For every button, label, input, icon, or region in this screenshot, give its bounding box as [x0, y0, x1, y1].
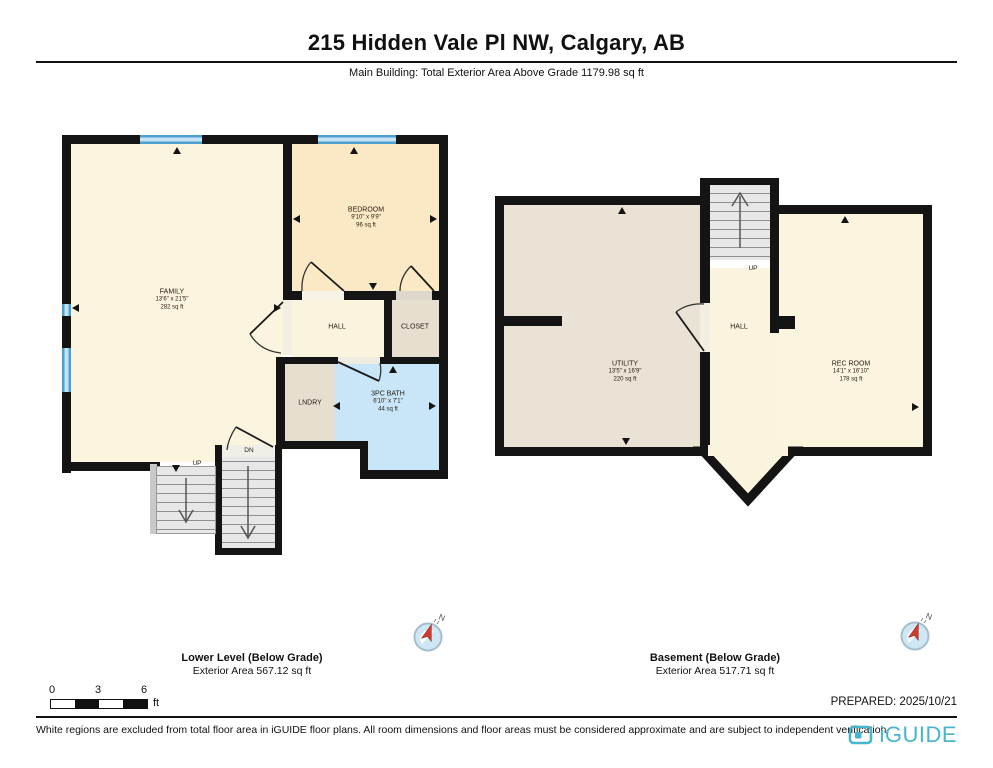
room-rec — [779, 214, 923, 447]
room-label-rec: REC ROOM 14'1" x 16'10" 178 sq ft — [832, 360, 871, 385]
iguide-logo-text: iGUIDE — [879, 722, 957, 748]
scale-bar-segments — [50, 699, 148, 709]
wall-segment — [770, 178, 779, 333]
scale-tick-0: 0 — [46, 684, 58, 696]
wall-segment — [700, 178, 777, 185]
wall-segment — [495, 447, 710, 456]
page-title: 215 Hidden Vale Pl NW, Calgary, AB — [0, 30, 993, 56]
stairs-up-basement — [710, 185, 770, 260]
compass-rose-basement: N — [894, 607, 940, 657]
stair-side-wall — [150, 464, 157, 534]
wall-segment — [360, 470, 448, 479]
wall-segment — [700, 178, 710, 268]
north-label: N — [924, 611, 933, 623]
scale-unit: ft — [153, 697, 159, 709]
window — [318, 135, 396, 144]
basement-caption: Basement (Below Grade) Exterior Area 517… — [650, 652, 780, 677]
door-opening — [302, 291, 344, 300]
scale-bar: 0 3 6 ft — [50, 684, 180, 714]
room-label-family: FAMILY 13'6" x 21'5" 282 sq ft — [156, 288, 189, 313]
room-bath-lower — [366, 441, 439, 470]
scale-tick-6: 6 — [138, 684, 150, 696]
wall-segment — [923, 205, 932, 456]
wall-segment — [276, 357, 285, 449]
wall-segment — [215, 445, 222, 555]
wall-segment — [215, 548, 282, 555]
wall-segment — [439, 135, 448, 479]
window — [62, 348, 71, 392]
prepared-date: PREPARED: 2025/10/21 — [831, 696, 957, 708]
wall-segment — [770, 205, 932, 214]
stairs-dn-label: DN — [244, 447, 253, 455]
floorplan-page: 215 Hidden Vale Pl NW, Calgary, AB Main … — [0, 0, 993, 768]
stairs-up-basement-label: UP — [748, 265, 757, 273]
page-subtitle: Main Building: Total Exterior Area Above… — [0, 67, 993, 79]
room-utility — [504, 205, 700, 447]
door-opening — [338, 357, 380, 364]
wall-segment — [275, 445, 282, 555]
wall-segment — [495, 196, 504, 456]
door-opening — [283, 300, 292, 355]
wall-segment — [283, 135, 292, 300]
wall-segment — [790, 447, 932, 456]
room-label-hall-lower: HALL — [328, 322, 346, 331]
room-hall-opening — [770, 333, 779, 447]
window — [140, 135, 202, 144]
footer-divider — [36, 716, 957, 718]
stairs-up-lower — [157, 467, 215, 533]
room-label-bedroom: BEDROOM 9'10" x 9'9" 96 sq ft — [348, 206, 384, 231]
compass-rose-lower: N — [407, 608, 453, 658]
north-label: N — [437, 612, 446, 624]
window — [62, 304, 71, 316]
lower-level-caption: Lower Level (Below Grade) Exterior Area … — [181, 652, 322, 677]
wall-segment — [384, 296, 392, 357]
wall-segment — [62, 462, 160, 471]
iguide-logo: iGUIDE — [848, 722, 957, 748]
stairs-down-lower — [222, 453, 275, 548]
scale-tick-3: 3 — [92, 684, 104, 696]
room-label-bath: 3PC BATH 6'10" x 7'1" 44 sq ft — [371, 390, 405, 415]
stairs-up-label: UP — [192, 460, 201, 468]
room-label-closet: CLOSET — [401, 322, 429, 331]
door-opening — [700, 303, 710, 352]
room-label-hall-basement: HALL — [730, 322, 748, 331]
room-label-lndry: LNDRY — [298, 398, 322, 407]
wall-segment — [495, 196, 710, 205]
wall-segment — [276, 441, 366, 449]
basement-bay — [703, 445, 793, 500]
disclaimer-text: White regions are excluded from total fl… — [36, 724, 889, 736]
wall-segment — [700, 268, 710, 303]
door-opening — [396, 291, 432, 300]
iguide-logo-icon — [848, 724, 874, 746]
wall-segment — [700, 352, 710, 447]
room-hall-basement — [710, 268, 770, 447]
wall-segment — [504, 316, 562, 326]
header-divider — [36, 61, 957, 63]
room-label-utility: UTILITY 13'5" x 16'9" 220 sq ft — [609, 360, 642, 385]
wall-segment — [770, 316, 795, 329]
